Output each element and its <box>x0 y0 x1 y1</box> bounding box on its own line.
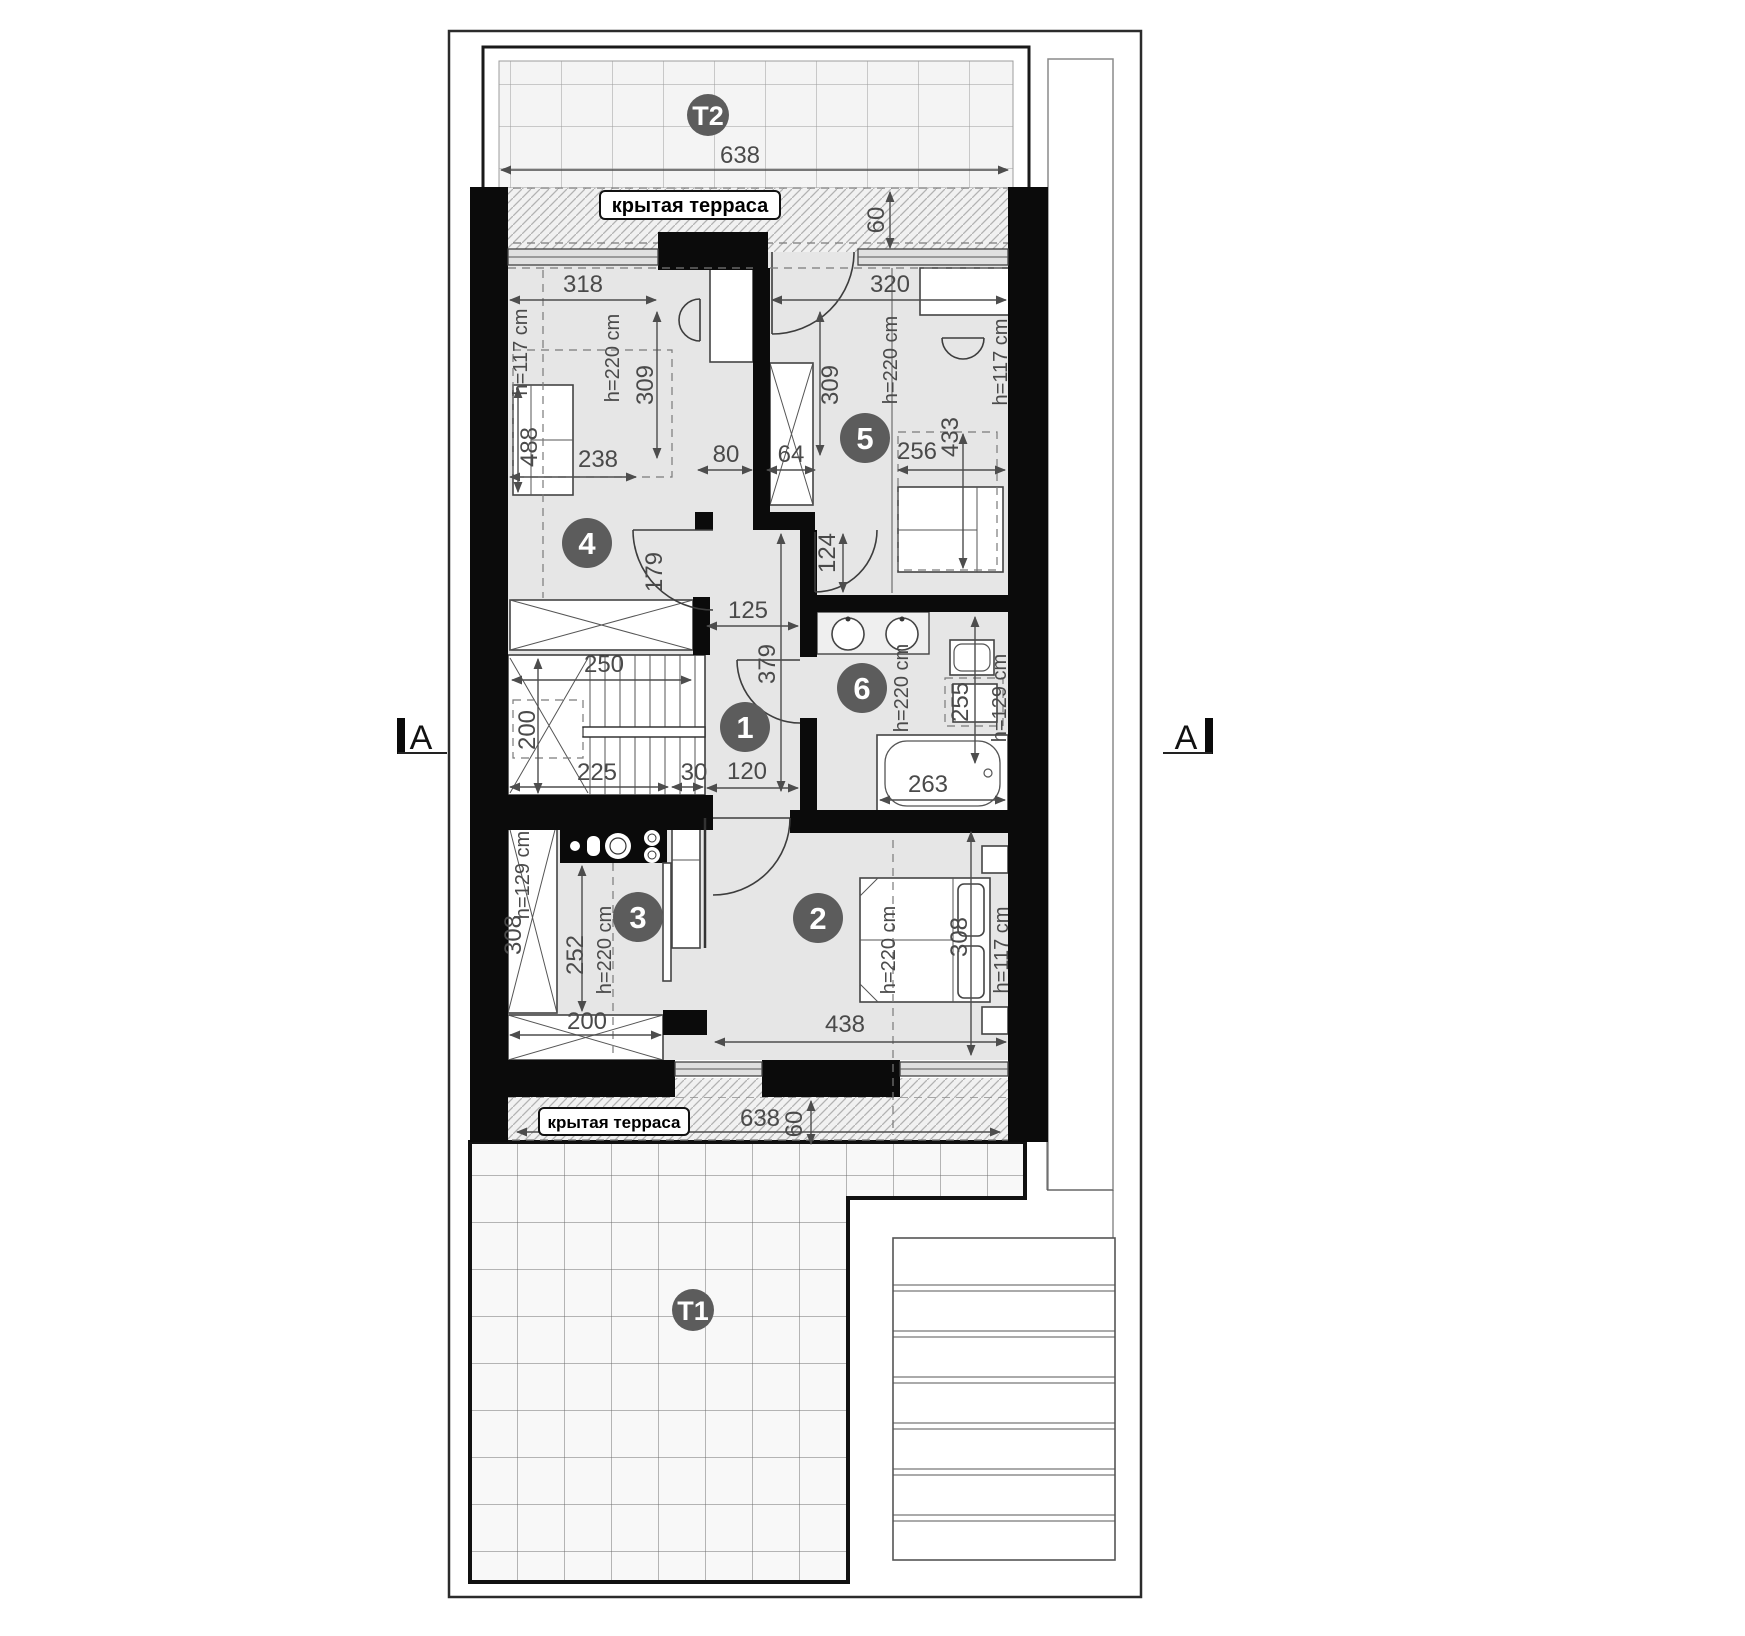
dim-r5-depth: 309 <box>817 365 844 405</box>
window-room5 <box>858 249 1008 265</box>
terrace-bottom-label-box: крытая терраса <box>539 1108 689 1135</box>
kitchen-knob <box>570 841 580 851</box>
nightstand-2 <box>982 1007 1008 1034</box>
dim-stairs-right: 30 <box>681 759 708 786</box>
dim-r1-depth: 379 <box>754 644 781 684</box>
section-marker-left: A <box>397 718 447 757</box>
terrace-top: T2 638 60 крытая терраса <box>483 47 1029 252</box>
dim-r2-h220: h=220 cm <box>878 906 900 994</box>
dim-r1-width-top: 125 <box>728 597 768 624</box>
dim-r3-h220: h=220 cm <box>594 906 616 994</box>
dim-r5-door: 124 <box>814 533 841 573</box>
dim-r4-shaft: 64 <box>778 441 805 468</box>
badge-room4: 4 <box>578 526 596 561</box>
section-marker-right: A <box>1163 718 1213 757</box>
badge-room6: 6 <box>853 671 870 706</box>
window-bedroom <box>900 1062 1008 1097</box>
terrace-t2-badge-label: T2 <box>692 101 724 131</box>
exterior-stairs <box>893 1238 1115 1560</box>
dim-r1-width-bottom: 120 <box>727 758 767 785</box>
dim-r4-niche: 80 <box>713 441 740 468</box>
dim-r5-width: 320 <box>870 271 910 298</box>
dim-r2-width: 438 <box>825 1011 865 1038</box>
wall-kitchen-top <box>508 795 713 830</box>
wall-central-column <box>753 268 770 530</box>
dim-t2-width: 638 <box>720 142 760 169</box>
dim-r3-width: 200 <box>567 1008 607 1035</box>
stove-burner-1 <box>644 830 660 846</box>
dim-r6-h129: h=129 cm <box>989 654 1011 742</box>
kitchen-sink <box>605 833 631 859</box>
dim-r2-length: 308 <box>946 917 973 957</box>
wall-bathroom-top <box>815 595 1008 612</box>
wardrobe-hall <box>510 600 693 650</box>
dim-r4-sofa: 488 <box>516 427 543 467</box>
window-room4 <box>508 249 658 265</box>
terrace-t1-badge-label: T1 <box>677 1296 709 1326</box>
dim-r3-cabinet: 308 <box>500 915 527 955</box>
dim-r2-h117: h=117 cm <box>991 907 1013 994</box>
dim-stairs-bottom: 225 <box>577 759 617 786</box>
kitchen-soap <box>587 836 600 856</box>
daybed-room5 <box>898 487 1003 572</box>
ventilation-shaft <box>770 363 813 505</box>
stove-burner-2 <box>644 847 660 863</box>
wall-bottom-1 <box>508 1060 675 1097</box>
dim-r5-h220: h=220 cm <box>880 316 902 404</box>
wall-bedroom-top <box>790 810 1008 833</box>
section-label-left: A <box>410 719 433 757</box>
dim-r6-side: 255 <box>947 682 974 722</box>
dim-stairs-left: 200 <box>514 710 541 750</box>
dim-r4-door: 179 <box>641 552 668 592</box>
dim-r4-depth: 309 <box>632 365 659 405</box>
section-label-right: A <box>1175 719 1198 757</box>
dim-t2-depth: 60 <box>863 207 890 234</box>
badge-room1: 1 <box>736 710 753 745</box>
desk-room5 <box>920 268 1010 315</box>
dim-r6-h220: h=220 cm <box>891 644 913 732</box>
wall-right <box>1008 187 1048 1142</box>
dim-r3-depth: 252 <box>562 935 589 975</box>
dim-r3-h129: h=129 cm <box>512 831 534 919</box>
wall-top-center <box>658 232 768 270</box>
terrace-door-sill <box>675 1062 762 1097</box>
wall-bottom-2 <box>762 1060 900 1097</box>
dim-t1-width: 638 <box>740 1105 780 1132</box>
dim-r4-h220: h=220 cm <box>602 314 624 402</box>
fridge <box>672 822 700 948</box>
dim-r4-width: 318 <box>563 271 603 298</box>
dim-r5-zone-d: 433 <box>937 417 964 457</box>
desk-room4 <box>710 268 753 362</box>
badge-room5: 5 <box>856 421 873 456</box>
dim-stairs-top: 250 <box>584 651 624 678</box>
floor-plan-drawing: T2 638 60 крытая терраса T1 638 60 крыта… <box>0 0 1745 1636</box>
wall-left <box>470 187 508 1142</box>
terrace-bottom-label: крытая терраса <box>548 1113 681 1132</box>
dim-r5-zone-w: 256 <box>897 438 937 465</box>
dim-r6-tub: 263 <box>908 771 948 798</box>
nightstand-1 <box>982 846 1008 873</box>
dim-t1-depth: 60 <box>781 1111 808 1138</box>
dim-r5-h117: h=117 cm <box>990 319 1012 406</box>
dim-r4-zone: 238 <box>578 446 618 473</box>
badge-room3: 3 <box>629 900 646 935</box>
sink-1 <box>832 618 864 650</box>
dim-r4-h117: h=117 cm <box>510 309 532 396</box>
floor-plan-page: T2 638 60 крытая терраса T1 638 60 крыта… <box>0 0 1745 1636</box>
badge-room2: 2 <box>809 901 826 936</box>
terrace-top-label: крытая терраса <box>612 195 769 217</box>
terrace-top-label-box: крытая терраса <box>600 191 780 219</box>
